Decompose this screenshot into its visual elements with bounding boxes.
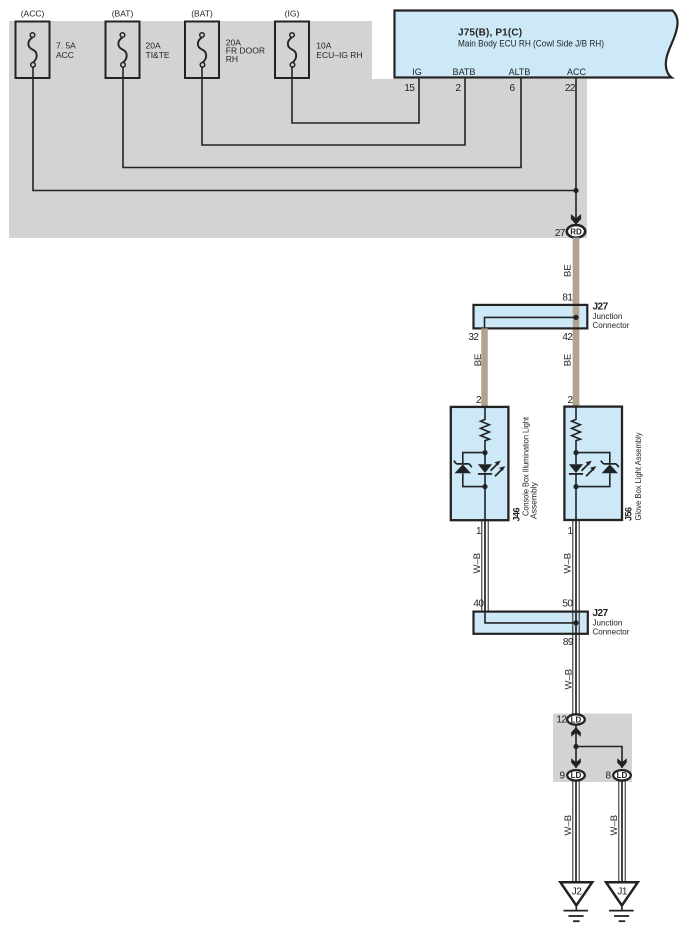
svg-text:(BAT): (BAT) bbox=[191, 9, 213, 19]
svg-text:Junction: Junction bbox=[593, 312, 623, 321]
svg-text:(IG): (IG) bbox=[285, 9, 300, 19]
svg-text:Connector: Connector bbox=[593, 628, 630, 637]
svg-text:TI&TE: TI&TE bbox=[146, 50, 170, 60]
svg-text:32: 32 bbox=[468, 332, 479, 343]
svg-text:LD: LD bbox=[571, 771, 582, 780]
svg-text:7. 5A: 7. 5A bbox=[56, 40, 76, 50]
svg-text:10A: 10A bbox=[316, 40, 331, 50]
svg-text:LD: LD bbox=[617, 771, 628, 780]
svg-text:BATB: BATB bbox=[453, 67, 476, 77]
svg-text:9: 9 bbox=[559, 771, 565, 782]
svg-text:Main Body ECU RH (Cowl Side J/: Main Body ECU RH (Cowl Side J/B RH) bbox=[458, 39, 604, 49]
svg-text:2: 2 bbox=[455, 83, 461, 94]
svg-text:8: 8 bbox=[605, 771, 611, 782]
svg-text:1: 1 bbox=[476, 526, 482, 537]
svg-text:IG: IG bbox=[412, 67, 422, 77]
svg-text:J2: J2 bbox=[572, 887, 583, 898]
svg-text:27: 27 bbox=[555, 228, 566, 239]
svg-text:W–B: W–B bbox=[609, 815, 620, 836]
svg-text:BE: BE bbox=[563, 354, 574, 367]
svg-text:W–B: W–B bbox=[563, 815, 574, 836]
svg-text:RH: RH bbox=[226, 54, 238, 64]
svg-text:15: 15 bbox=[404, 83, 415, 94]
svg-text:W–B: W–B bbox=[563, 553, 574, 574]
svg-text:W–B: W–B bbox=[472, 553, 483, 574]
svg-text:Connector: Connector bbox=[593, 321, 630, 330]
svg-text:22: 22 bbox=[565, 83, 576, 94]
svg-text:J56: J56 bbox=[624, 507, 634, 521]
svg-text:50: 50 bbox=[562, 599, 573, 610]
svg-text:ALTB: ALTB bbox=[509, 67, 531, 77]
svg-text:12: 12 bbox=[556, 715, 567, 726]
svg-text:W–B: W–B bbox=[564, 669, 575, 690]
svg-text:BE: BE bbox=[563, 264, 574, 277]
svg-text:ECU–IG RH: ECU–IG RH bbox=[316, 50, 362, 60]
svg-text:2: 2 bbox=[476, 395, 482, 406]
svg-text:ACC: ACC bbox=[567, 67, 587, 77]
svg-text:40: 40 bbox=[473, 599, 484, 610]
svg-text:89: 89 bbox=[563, 637, 574, 648]
svg-text:81: 81 bbox=[562, 293, 573, 304]
svg-text:Junction: Junction bbox=[593, 618, 623, 627]
svg-text:(BAT): (BAT) bbox=[112, 9, 134, 19]
svg-text:20A: 20A bbox=[146, 40, 161, 50]
svg-text:42: 42 bbox=[562, 332, 573, 343]
svg-text:LD: LD bbox=[571, 715, 582, 724]
svg-text:BE: BE bbox=[473, 354, 484, 367]
svg-text:J75(B), P1(C): J75(B), P1(C) bbox=[458, 28, 522, 39]
svg-text:ACC: ACC bbox=[56, 50, 74, 60]
svg-text:Glove Box Light Assembly: Glove Box Light Assembly bbox=[633, 432, 643, 521]
svg-text:RD: RD bbox=[570, 227, 582, 236]
svg-text:Assembly: Assembly bbox=[529, 481, 539, 519]
svg-text:6: 6 bbox=[509, 83, 515, 94]
svg-text:J1: J1 bbox=[617, 887, 628, 898]
svg-text:2: 2 bbox=[567, 395, 573, 406]
svg-text:(ACC): (ACC) bbox=[21, 9, 45, 19]
